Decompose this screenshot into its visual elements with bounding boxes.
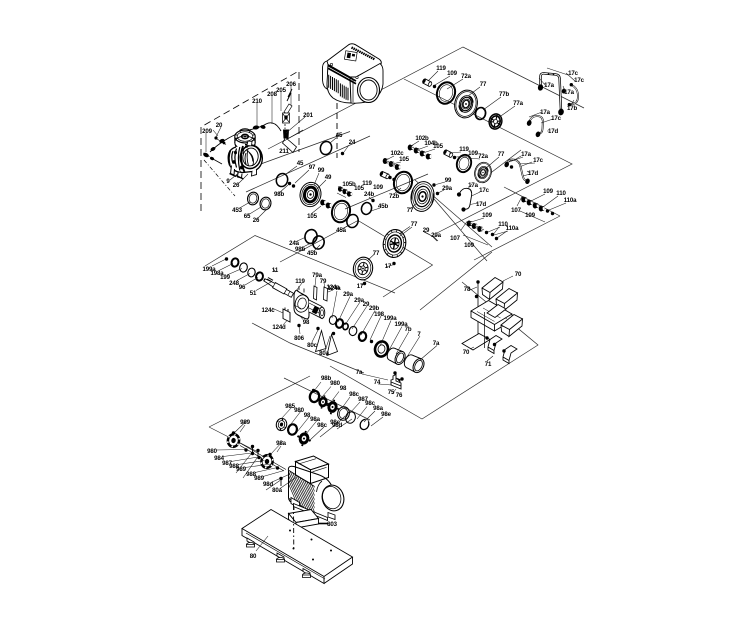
svg-text:124c: 124c — [262, 307, 276, 314]
svg-text:119: 119 — [362, 180, 372, 187]
svg-text:17: 17 — [357, 283, 364, 290]
svg-text:17c: 17c — [551, 115, 561, 122]
svg-text:24: 24 — [349, 139, 356, 146]
svg-text:109: 109 — [447, 70, 457, 77]
svg-text:109: 109 — [525, 212, 535, 219]
svg-text:17c: 17c — [574, 77, 584, 84]
svg-text:17b: 17b — [567, 105, 577, 112]
svg-text:98e: 98e — [330, 419, 340, 426]
svg-text:78: 78 — [464, 286, 471, 293]
svg-text:453: 453 — [232, 207, 242, 214]
svg-text:7a: 7a — [356, 369, 363, 376]
svg-text:109: 109 — [373, 184, 383, 191]
svg-text:17d: 17d — [528, 170, 538, 177]
svg-text:124d: 124d — [272, 324, 286, 331]
svg-text:17c: 17c — [479, 187, 489, 194]
svg-text:77: 77 — [373, 250, 380, 257]
svg-text:77: 77 — [407, 207, 414, 214]
svg-text:29a: 29a — [343, 291, 353, 298]
svg-text:98: 98 — [303, 319, 310, 326]
svg-text:989: 989 — [236, 466, 246, 473]
svg-text:45a: 45a — [336, 227, 346, 234]
svg-text:17a: 17a — [540, 109, 550, 116]
svg-text:45: 45 — [336, 132, 343, 139]
svg-text:209: 209 — [202, 128, 212, 135]
svg-text:98a: 98a — [276, 440, 286, 447]
svg-text:17d: 17d — [476, 201, 486, 208]
svg-text:98c: 98c — [317, 422, 327, 429]
svg-text:17d: 17d — [548, 128, 558, 135]
svg-text:124a: 124a — [328, 285, 342, 292]
svg-text:205: 205 — [276, 87, 286, 94]
svg-text:96: 96 — [239, 284, 246, 291]
svg-text:98b: 98b — [295, 246, 305, 253]
svg-text:206: 206 — [286, 81, 296, 88]
svg-text:76: 76 — [396, 392, 403, 399]
svg-text:20: 20 — [216, 122, 223, 129]
svg-text:109: 109 — [464, 242, 474, 249]
svg-text:7b: 7b — [405, 326, 412, 333]
svg-text:119: 119 — [295, 278, 305, 285]
svg-text:107: 107 — [450, 235, 460, 242]
svg-text:803: 803 — [327, 521, 337, 528]
svg-text:74: 74 — [374, 379, 381, 386]
svg-text:17: 17 — [385, 263, 392, 270]
svg-text:29a: 29a — [431, 232, 441, 239]
svg-text:98: 98 — [340, 385, 347, 392]
svg-text:107: 107 — [511, 207, 521, 214]
svg-text:51: 51 — [250, 290, 257, 297]
svg-text:80a: 80a — [319, 350, 329, 357]
svg-text:77: 77 — [480, 81, 487, 88]
svg-text:98e: 98e — [381, 411, 391, 418]
svg-text:71: 71 — [485, 361, 492, 368]
svg-text:99: 99 — [445, 177, 452, 184]
svg-text:97: 97 — [309, 164, 316, 171]
svg-text:80c: 80c — [307, 342, 317, 349]
svg-text:989: 989 — [240, 419, 250, 426]
svg-text:211: 211 — [279, 148, 289, 155]
svg-text:17a: 17a — [468, 182, 478, 189]
svg-text:7a: 7a — [433, 340, 440, 347]
svg-text:11: 11 — [272, 267, 279, 274]
svg-text:45: 45 — [297, 160, 304, 167]
svg-text:210: 210 — [252, 98, 262, 105]
svg-text:980: 980 — [207, 448, 217, 455]
svg-text:98b: 98b — [274, 191, 284, 198]
svg-text:45b: 45b — [378, 203, 388, 210]
svg-text:806: 806 — [294, 335, 304, 342]
svg-text:80: 80 — [250, 553, 257, 560]
svg-text:80a: 80a — [272, 487, 282, 494]
svg-text:201: 201 — [303, 112, 313, 119]
svg-text:29a: 29a — [442, 185, 452, 192]
svg-text:75: 75 — [388, 389, 395, 396]
svg-text:70: 70 — [463, 349, 470, 356]
svg-text:70: 70 — [515, 271, 522, 278]
svg-text:26: 26 — [253, 217, 260, 224]
svg-text:77b: 77b — [499, 91, 509, 98]
svg-text:105: 105 — [307, 213, 317, 220]
svg-text:45b: 45b — [307, 250, 317, 257]
